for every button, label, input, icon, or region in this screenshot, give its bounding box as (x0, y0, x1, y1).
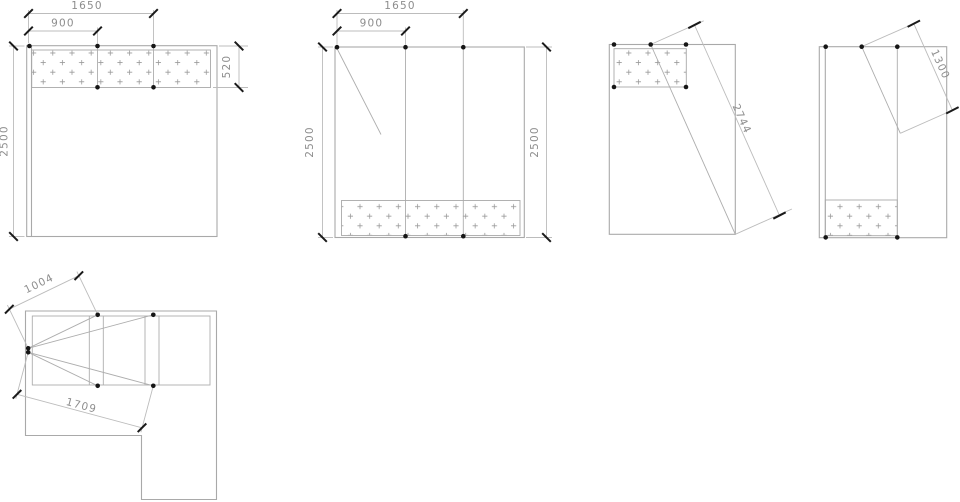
hatched-band (342, 201, 521, 236)
sight-line (28, 352, 98, 386)
dim-label: 900 (360, 18, 384, 30)
node-dot (151, 384, 156, 389)
dim-width-left: 900 (24, 18, 102, 44)
node-dot (403, 234, 408, 239)
dim-diagonal: 1300 (862, 21, 959, 134)
dim-tick (688, 22, 700, 28)
node-dot (648, 42, 653, 47)
dim-width-total: 1650 (24, 0, 158, 43)
dim-label: 520 (221, 55, 233, 79)
dim-label: 1004 (22, 272, 56, 297)
dim-label: 900 (51, 18, 75, 30)
hatched-band (825, 200, 897, 236)
node-dot (895, 44, 900, 49)
dim-tick (773, 212, 785, 218)
node-dot (27, 44, 32, 49)
dim-tick (946, 107, 958, 113)
node-dot (151, 85, 156, 90)
elevation-c: 2744 (609, 21, 792, 235)
node-dot (151, 44, 156, 49)
dim-label: 1709 (65, 396, 99, 416)
node-dot (95, 85, 100, 90)
dim-height-right: 2500 (526, 43, 552, 242)
node-dot (612, 42, 617, 47)
dim-band-height: 520 (213, 42, 248, 92)
dim-tick (5, 305, 14, 314)
node-dot (823, 44, 828, 49)
dim-width-left: 900 (333, 18, 410, 45)
node-dot (95, 44, 100, 49)
dim-label: 1650 (384, 0, 416, 12)
extension-line (141, 386, 153, 432)
node-dot (335, 45, 340, 50)
node-dot (684, 85, 689, 90)
dim-label: 2744 (730, 102, 754, 136)
dim-label: 1650 (71, 0, 103, 12)
elevation-d: 1300 (819, 21, 959, 240)
leader-line (337, 49, 381, 135)
sight-line (28, 315, 98, 349)
dim-label: 2500 (0, 125, 11, 157)
sight-line (28, 315, 153, 349)
node-dot (403, 45, 408, 50)
extension-line (16, 352, 28, 398)
elevation-b: 1650 900 2500 2500 (304, 0, 552, 242)
dim-lower-diagonal: 1709 (13, 352, 154, 432)
floor-plan: 1004 1709 (5, 271, 217, 499)
extension-line (77, 272, 98, 315)
node-dot (823, 235, 828, 240)
dim-width-total: 1650 (333, 0, 468, 45)
node-dot (684, 42, 689, 47)
node-dot (26, 346, 31, 351)
sight-line (28, 352, 153, 386)
unit-outline (32, 316, 210, 385)
dim-label: 2500 (529, 126, 541, 158)
dim-tick (75, 271, 84, 280)
node-dot (461, 45, 466, 50)
node-dot (26, 350, 31, 355)
node-dot (895, 235, 900, 240)
node-dot (95, 313, 100, 318)
cad-drawing-sheet: 1650 900 2500 520 (0, 0, 960, 502)
dim-label: 2500 (304, 126, 316, 158)
plan-outline (26, 311, 217, 500)
diagonal-brace (651, 45, 736, 235)
dim-tick (13, 390, 22, 399)
elevation-a: 1650 900 2500 520 (0, 0, 248, 241)
dim-tick (908, 21, 920, 27)
hatched-band (614, 49, 686, 87)
node-dot (612, 85, 617, 90)
dim-height: 2500 (0, 42, 25, 241)
node-dot (95, 384, 100, 389)
node-dot (461, 234, 466, 239)
dim-height-left: 2500 (304, 43, 333, 242)
diagonal-brace (862, 47, 901, 134)
hatched-band (32, 50, 211, 88)
node-dot (859, 44, 864, 49)
cad-drawing: 1650 900 2500 520 (0, 0, 960, 502)
node-dot (151, 313, 156, 318)
dim-tick (138, 424, 147, 433)
